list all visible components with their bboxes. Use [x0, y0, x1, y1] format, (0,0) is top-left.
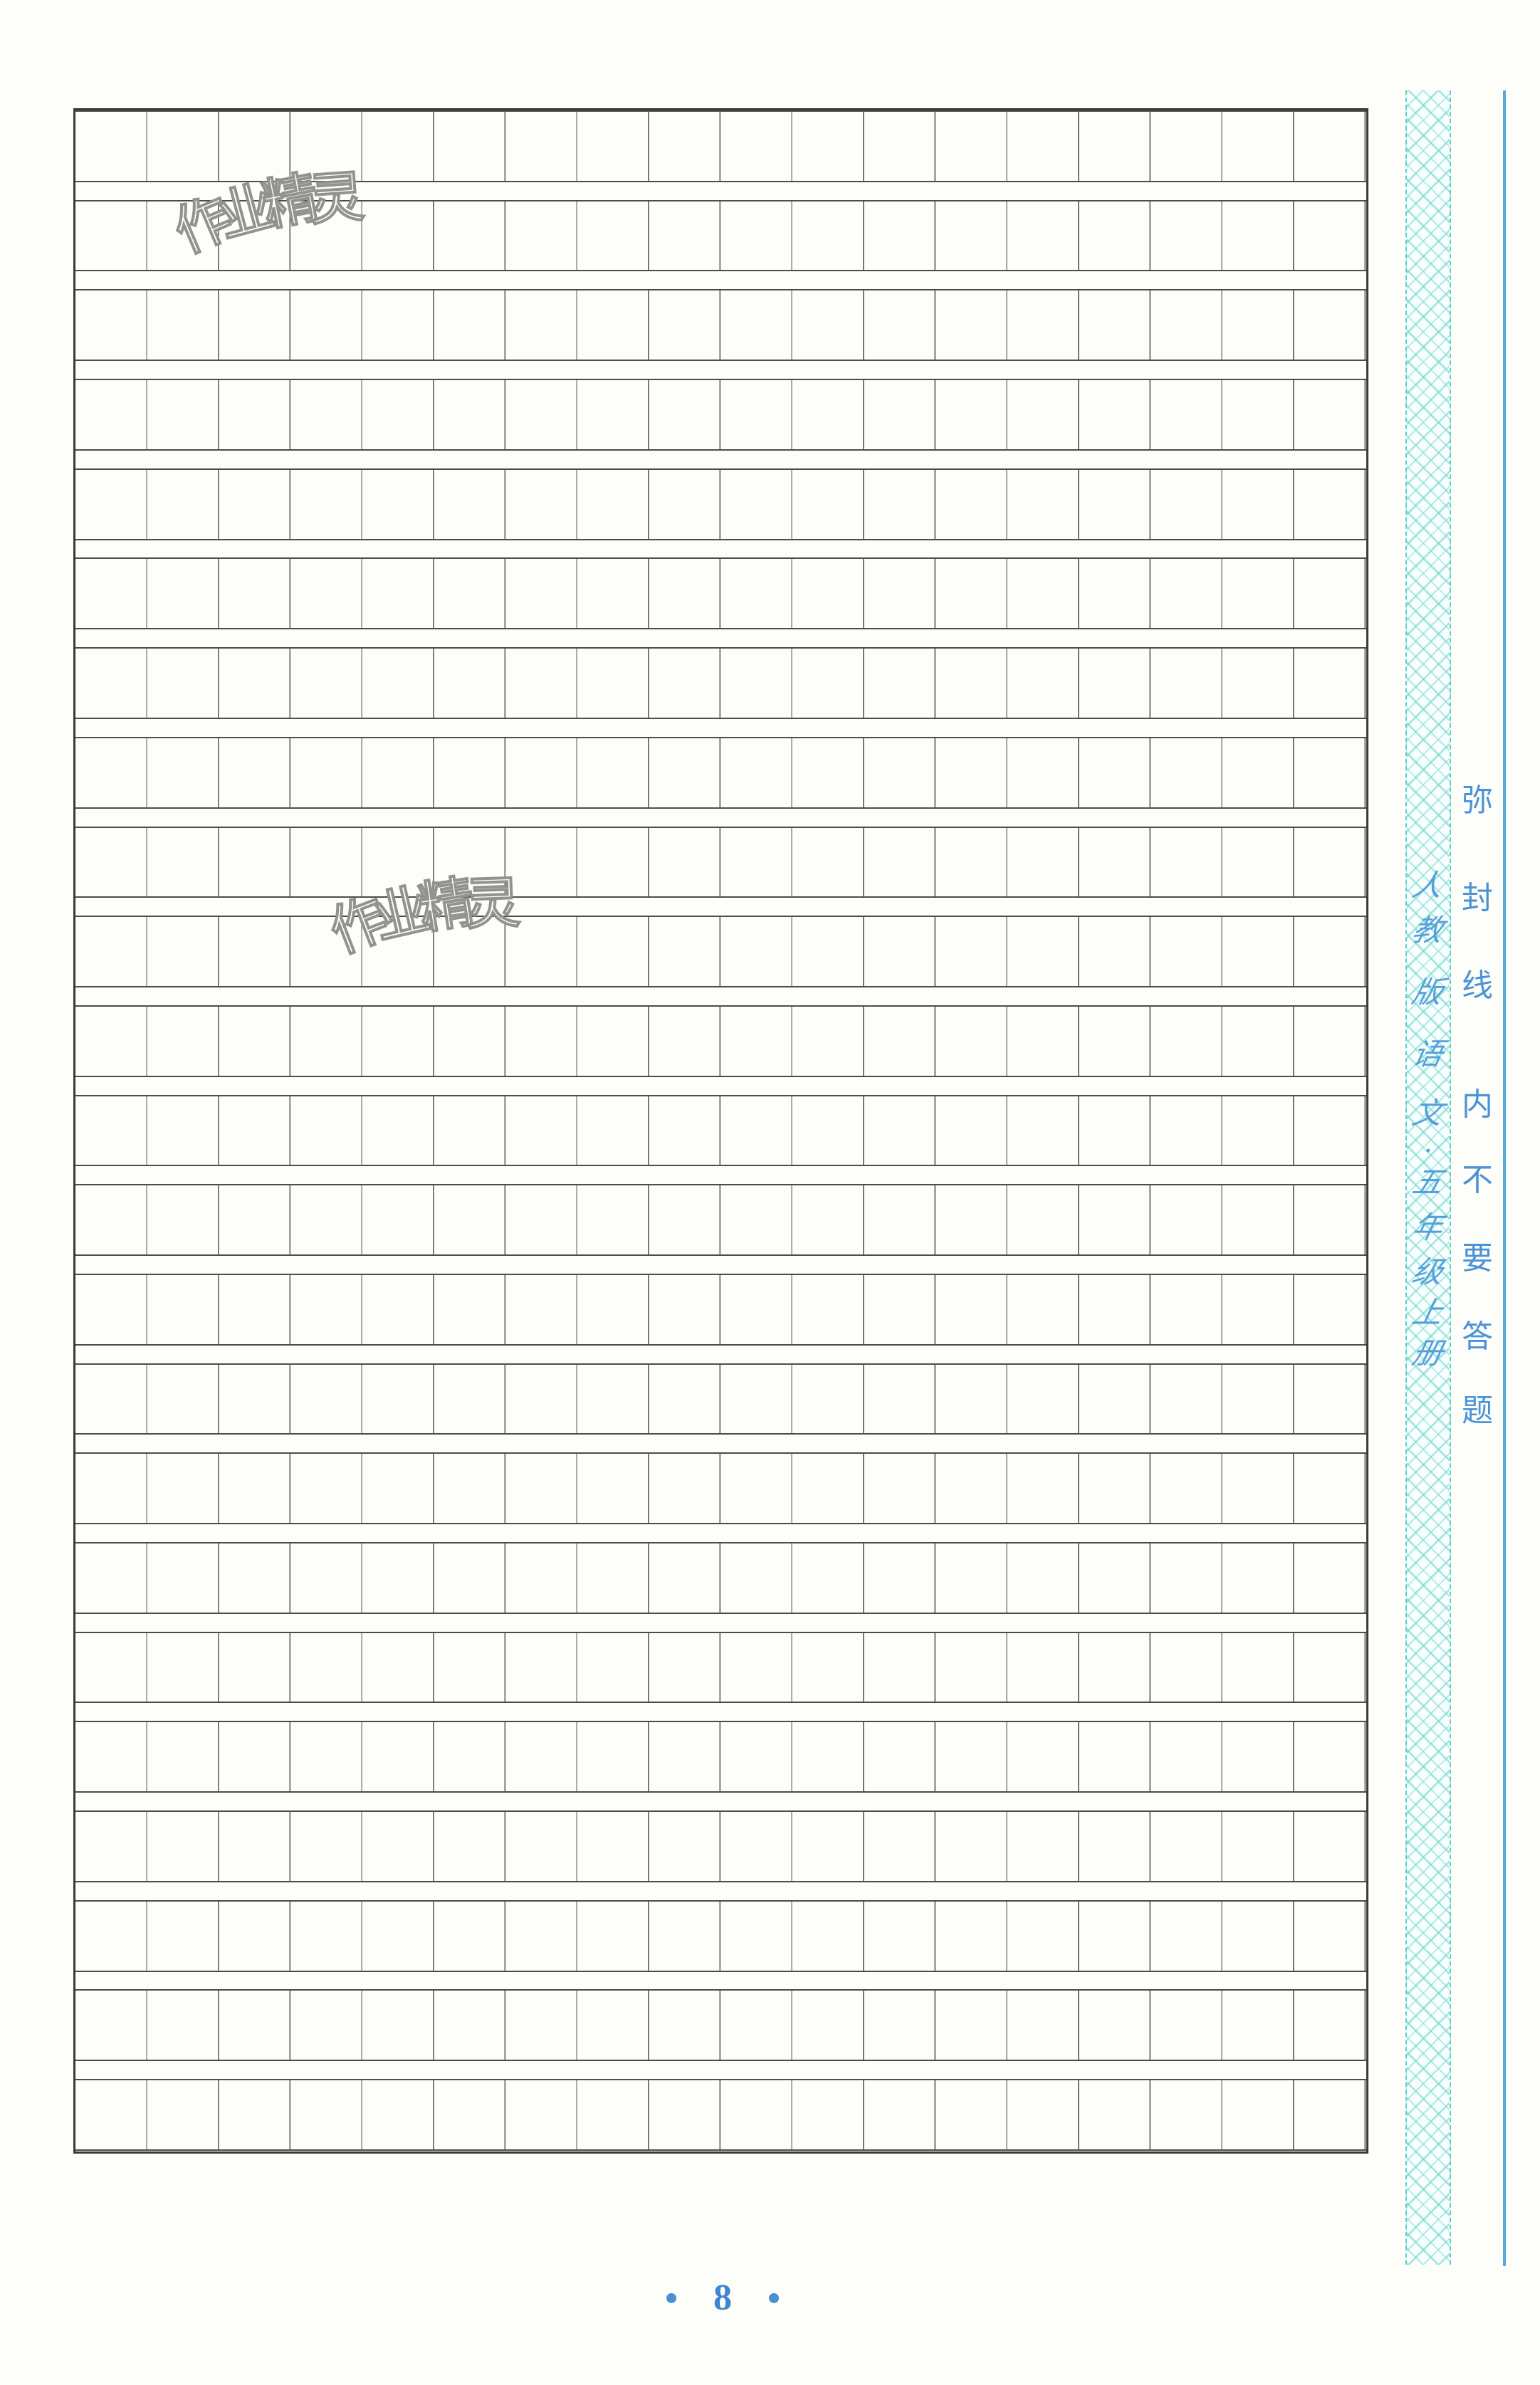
edition-label-char: 人 [1410, 871, 1446, 901]
grid-row-gap [75, 1972, 1366, 1990]
seal-caption-char: 要 [1462, 1243, 1493, 1274]
grid-row [75, 1632, 1366, 1704]
edition-label-char: 版 [1410, 978, 1446, 1008]
edition-label-char: 教 [1410, 916, 1446, 946]
watermark-char: 灵 [307, 170, 356, 229]
grid-row-gap [75, 1614, 1366, 1632]
watermark-char: 精 [415, 876, 468, 938]
grid-row [75, 827, 1366, 898]
grid-row [75, 1363, 1366, 1435]
seal-caption-char: 线 [1462, 970, 1493, 1002]
grid-row [75, 1900, 1366, 1972]
grid-row [75, 1274, 1366, 1346]
grid-row-gap [75, 361, 1366, 379]
edition-label-char: 文 [1410, 1099, 1446, 1129]
grid-row-gap [75, 1524, 1366, 1542]
grid-row [75, 1452, 1366, 1524]
grid-row [75, 1005, 1366, 1077]
grid-row [75, 916, 1366, 987]
seal-caption-char: 弥 [1462, 785, 1493, 817]
grid-row [75, 1095, 1366, 1167]
composition-grid [73, 108, 1368, 2154]
grid-row-gap [75, 629, 1366, 647]
page-number: 8 [713, 2280, 732, 2317]
grid-row [75, 1810, 1366, 1882]
grid-row [75, 289, 1366, 361]
grid-row [75, 647, 1366, 719]
grid-row-gap [75, 271, 1366, 289]
edition-label-char: 上 [1410, 1299, 1446, 1328]
footer-left-dot-icon [666, 2293, 676, 2303]
grid-row-gap [75, 898, 1366, 916]
edition-label-char: 年 [1410, 1213, 1446, 1243]
grid-row [75, 2079, 1366, 2151]
grid-row [75, 557, 1366, 629]
seal-caption-char: 答 [1462, 1321, 1493, 1353]
grid-row-gap [75, 2061, 1366, 2079]
grid-row-gap [75, 719, 1366, 737]
grid-row-gap [75, 540, 1366, 558]
footer-right-dot-icon [769, 2293, 779, 2303]
grid-row [75, 110, 1366, 182]
grid-row [75, 1989, 1366, 2061]
seal-caption-char: 不 [1462, 1165, 1493, 1196]
page-footer: 8 [666, 2277, 779, 2320]
grid-row [75, 1721, 1366, 1793]
grid-row-gap [75, 1077, 1366, 1095]
seal-caption-char: 题 [1462, 1395, 1493, 1427]
seal-line-rule [1503, 90, 1506, 2266]
grid-row-gap [75, 1882, 1366, 1900]
edition-label-char: 级 [1410, 1258, 1446, 1288]
seal-caption-char: 封 [1462, 883, 1493, 914]
grid-row [75, 737, 1366, 809]
grid-row-gap [75, 1435, 1366, 1452]
seal-caption-char: 内 [1462, 1089, 1493, 1121]
grid-row-gap [75, 1256, 1366, 1274]
grid-row-gap [75, 809, 1366, 827]
grid-row [75, 468, 1366, 540]
grid-row [75, 1542, 1366, 1614]
watermark-char: 灵 [464, 876, 512, 933]
grid-row [75, 1184, 1366, 1256]
grid-row-gap [75, 1793, 1366, 1810]
watermark-char: 精 [258, 172, 313, 235]
edition-label-char: 语 [1410, 1040, 1446, 1070]
edition-label-char: 五 [1410, 1168, 1446, 1198]
grid-row [75, 379, 1366, 451]
grid-row-gap [75, 1703, 1366, 1721]
grid-row-gap [75, 1166, 1366, 1184]
edition-label-char: 册 [1410, 1339, 1446, 1369]
grid-row-gap [75, 1346, 1366, 1363]
grid-row-gap [75, 451, 1366, 468]
grid-row-gap [75, 987, 1366, 1005]
scanned-workbook-page: { "page": { "background": "#fdfdfa", "fo… [0, 0, 1540, 2385]
